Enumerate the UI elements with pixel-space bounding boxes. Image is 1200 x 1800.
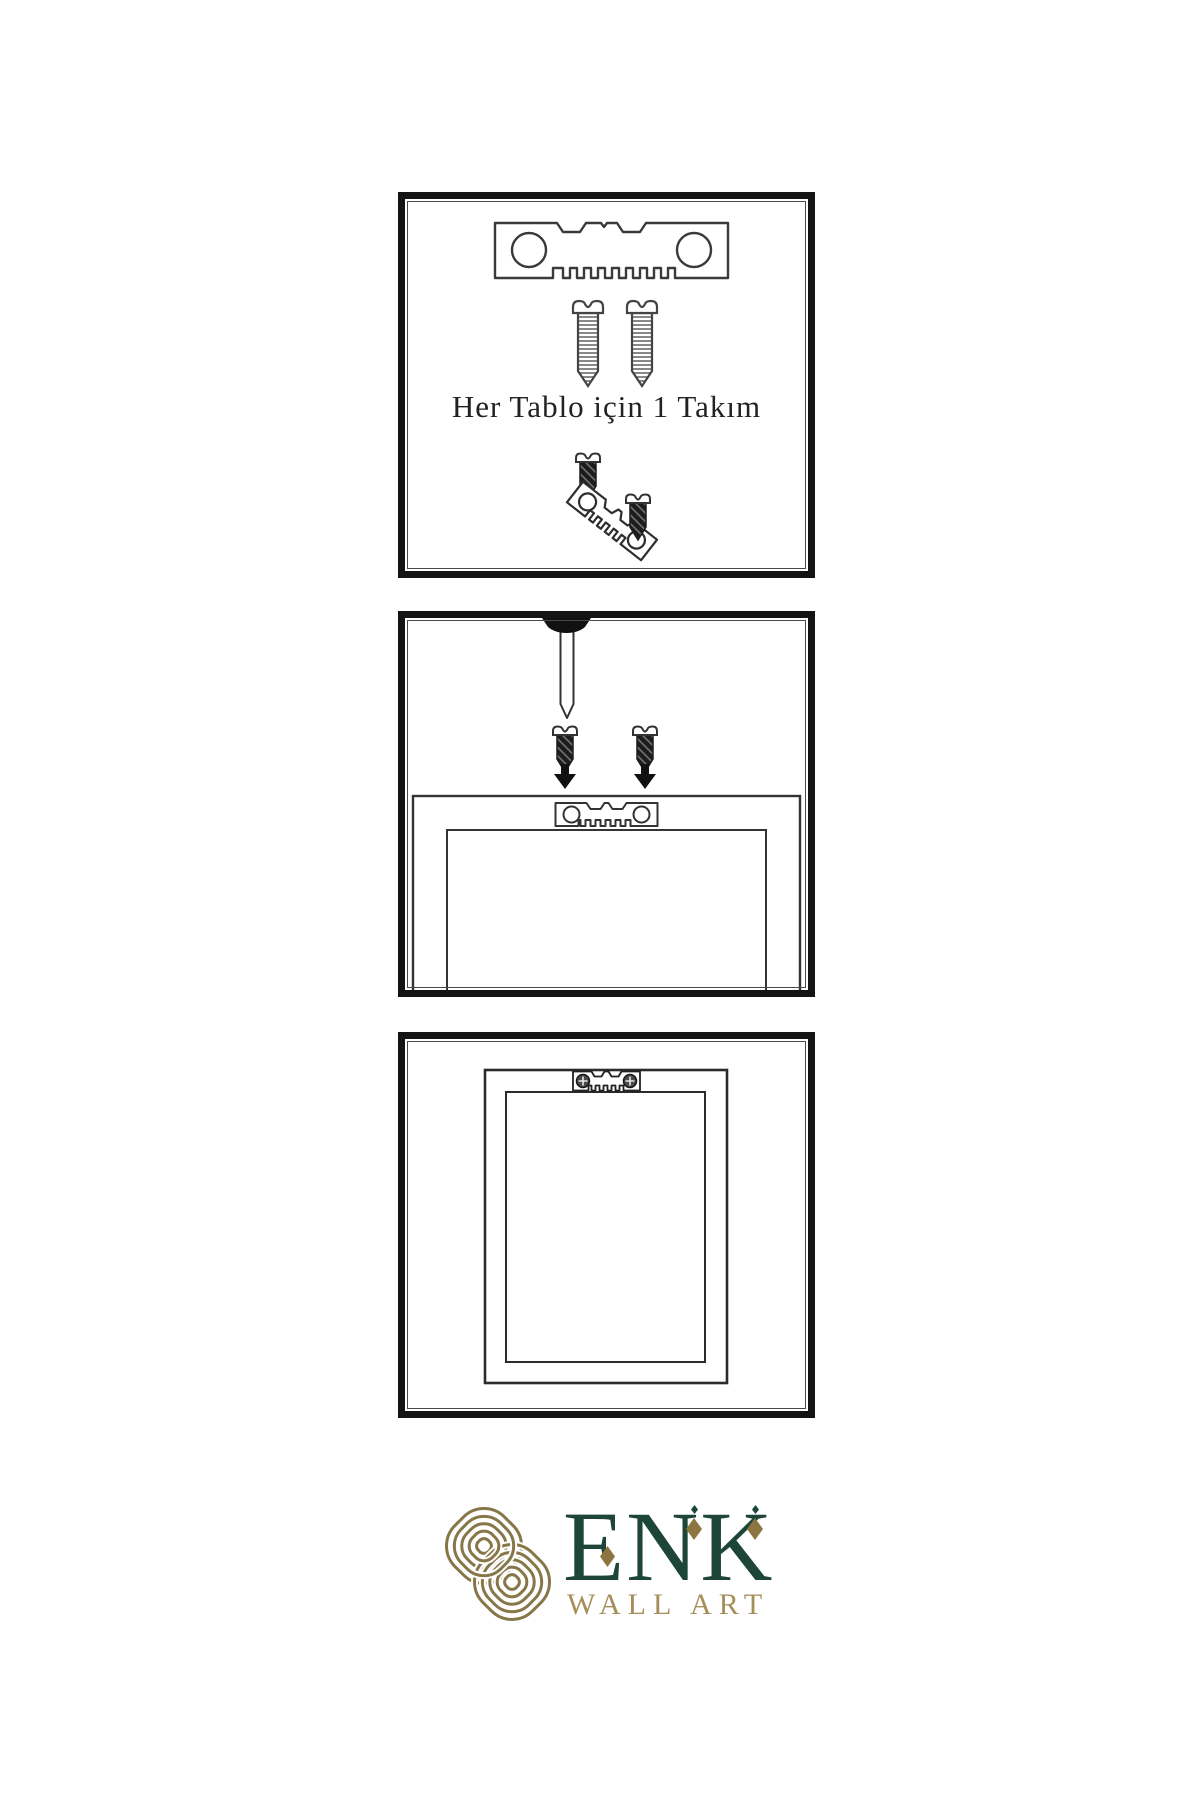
wall-nail-icon [542,618,591,718]
green-diamond-dot-icon [752,1505,759,1514]
kit-caption: Her Tablo için 1 Takım [405,389,808,425]
hardware-kit-illustration [405,199,808,571]
brand-tagline: WALL ART [567,1590,769,1620]
arrow-down-icon [634,764,656,789]
sawtooth-hanger-icon [495,223,728,278]
instruction-sheet: Her Tablo için 1 Takım [0,0,1200,1800]
gold-diamond-icon [747,1518,763,1540]
panel-hung-frame [398,1032,815,1418]
gold-diamond-icon [686,1518,702,1540]
interlocking-knot-icon [434,1500,562,1628]
hung-frame-illustration [405,1039,808,1411]
arrow-down-icon [554,764,576,789]
green-diamond-dot-icon [691,1505,698,1514]
panel-mounting-step [398,611,815,997]
sawtooth-hanger-icon [556,803,658,826]
panel-hardware-kit: Her Tablo için 1 Takım [398,192,815,578]
phillips-screw-icon [624,1075,637,1088]
screw-icon [627,301,657,386]
brand-name: ENK [563,1497,775,1597]
screw-icon [573,301,603,386]
mounting-illustration [405,618,808,990]
gold-diamond-icon [600,1546,615,1567]
frame-front-icon [485,1070,727,1383]
phillips-screw-icon [577,1075,590,1088]
